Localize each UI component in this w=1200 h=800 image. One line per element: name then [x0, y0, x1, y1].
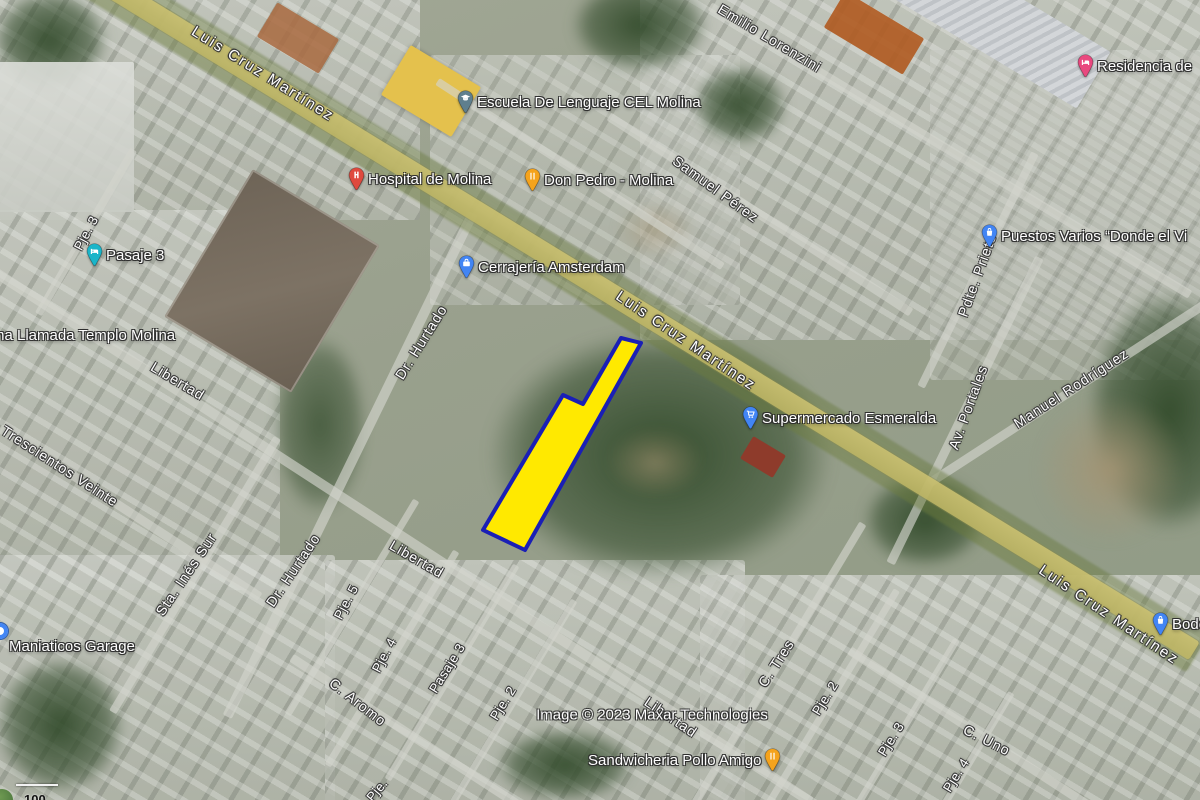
poi-maniaticos[interactable]: Maniaticos Garage: [9, 638, 135, 655]
poi-label-templo[interactable]: ma Llamada Templo Molina: [0, 327, 175, 344]
hospital-pin-icon[interactable]: [348, 167, 365, 191]
poi-label-cerrajeria[interactable]: Cerrajería Amsterdam: [478, 259, 625, 276]
poi-label-hospital[interactable]: Hospital de Molina: [368, 171, 491, 188]
shopping-bag-pin-icon[interactable]: [1152, 612, 1169, 636]
poi-templo[interactable]: ma Llamada Templo Molina: [0, 327, 175, 344]
poi-puestos-varios[interactable]: Puestos Varios “Donde el Vi: [981, 224, 1187, 248]
scale-bar: [16, 784, 58, 786]
poi-label-bodega[interactable]: Bode: [1172, 616, 1200, 633]
scale-label: 100: [24, 792, 46, 800]
lodging-pin-icon[interactable]: [1077, 54, 1094, 78]
poi-label-pasaje-3[interactable]: Pasaje 3: [106, 247, 164, 264]
poi-bodega[interactable]: Bode: [1152, 612, 1200, 636]
lodging-pin-icon[interactable]: [86, 243, 103, 267]
poi-sandwicheria[interactable]: Sandwicheria Pollo Amigo: [588, 748, 781, 772]
restaurant-pin-icon[interactable]: [524, 168, 541, 192]
map-canvas[interactable]: Luis Cruz Martínez Luis Cruz Martínez Lu…: [0, 0, 1200, 800]
shopping-bag-pin-icon[interactable]: [981, 224, 998, 248]
map-attribution: Image © 2023 Maxar Technologies: [536, 707, 768, 724]
poi-label-don-pedro[interactable]: Don Pedro - Molina: [544, 172, 673, 189]
poi-pasaje-3-lodging[interactable]: Pasaje 3: [86, 243, 164, 267]
poi-label-maniaticos[interactable]: Maniaticos Garage: [9, 638, 135, 655]
poi-escuela[interactable]: Escuela De Lenguaje CEL Molina: [457, 90, 701, 114]
restaurant-pin-icon[interactable]: [764, 748, 781, 772]
poi-cerrajeria[interactable]: Cerrajería Amsterdam: [458, 255, 625, 279]
poi-hospital[interactable]: Hospital de Molina: [348, 167, 491, 191]
poi-residencia[interactable]: Residencia de: [1077, 54, 1192, 78]
bare-soil-patch: [590, 415, 720, 510]
briefcase-pin-icon[interactable]: [458, 255, 475, 279]
poi-don-pedro[interactable]: Don Pedro - Molina: [524, 168, 673, 192]
poi-label-escuela[interactable]: Escuela De Lenguaje CEL Molina: [477, 94, 701, 111]
poi-label-residencia[interactable]: Residencia de: [1097, 58, 1192, 75]
poi-label-supermercado[interactable]: Supermercado Esmeralda: [762, 410, 936, 427]
poi-label-puestos-varios[interactable]: Puestos Varios “Donde el Vi: [1001, 228, 1187, 245]
poi-label-sandwicheria[interactable]: Sandwicheria Pollo Amigo: [588, 752, 761, 769]
poi-supermercado[interactable]: Supermercado Esmeralda: [742, 406, 936, 430]
cart-pin-icon[interactable]: [742, 406, 759, 430]
school-pin-icon[interactable]: [457, 90, 474, 114]
